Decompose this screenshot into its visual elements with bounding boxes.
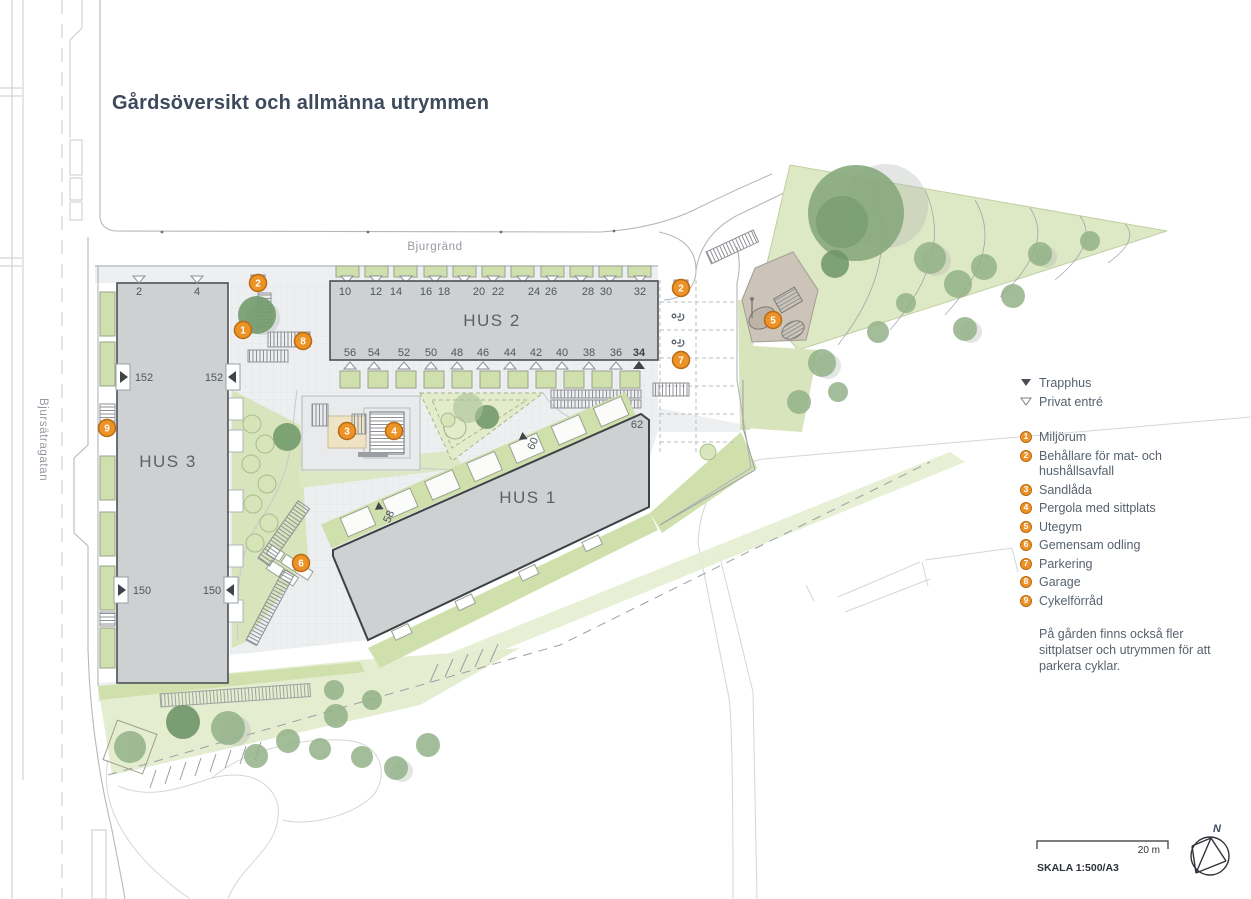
svg-text:2: 2 xyxy=(255,279,261,290)
stairwell-triangle-icon xyxy=(1020,378,1032,387)
legend: Trapphus Privat entré 1 Miljörum 2 Behål… xyxy=(1020,376,1230,674)
accessible-parking-icon xyxy=(672,339,684,346)
svg-text:40: 40 xyxy=(556,347,568,359)
svg-text:152: 152 xyxy=(205,372,223,384)
building-hus3: HUS 3 xyxy=(117,283,228,683)
svg-text:2: 2 xyxy=(136,286,142,298)
legend-number-icon: 2 xyxy=(1020,450,1032,462)
marker-pergola: 4 xyxy=(386,423,403,440)
svg-text:54: 54 xyxy=(368,347,380,359)
street-left-label: Bjursätragatan xyxy=(37,398,49,481)
svg-text:28: 28 xyxy=(582,286,594,298)
svg-text:152: 152 xyxy=(135,372,153,384)
street-bjursatragatan: Bjursätragatan xyxy=(0,0,125,899)
svg-text:62: 62 xyxy=(631,419,643,431)
marker-sandlada: 3 xyxy=(339,423,356,440)
north-compass-icon xyxy=(1191,837,1229,875)
svg-text:48: 48 xyxy=(451,347,463,359)
legend-number-icon: 9 xyxy=(1020,595,1032,607)
marker-cykelforrad: 9 xyxy=(99,420,116,437)
legend-number-icon: 6 xyxy=(1020,539,1032,551)
legend-privat-entre-label: Privat entré xyxy=(1039,395,1207,411)
accessible-parking-icon xyxy=(672,313,684,320)
marker-odling: 6 xyxy=(293,555,310,572)
marker-parkering: 7 xyxy=(673,352,690,369)
svg-text:30: 30 xyxy=(600,286,612,298)
svg-text:32: 32 xyxy=(634,286,646,298)
svg-text:42: 42 xyxy=(530,347,542,359)
svg-text:9: 9 xyxy=(104,424,110,435)
svg-text:20: 20 xyxy=(473,286,485,298)
legend-number-icon: 8 xyxy=(1020,576,1032,588)
svg-text:5: 5 xyxy=(770,316,776,327)
hus3-west-balconies xyxy=(100,292,115,668)
legend-item-avfall: 2 Behållare för mat- och hushållsavfall xyxy=(1020,449,1230,480)
svg-text:4: 4 xyxy=(194,286,200,298)
svg-text:26: 26 xyxy=(545,286,557,298)
marker-avfall-2: 2 xyxy=(673,280,690,297)
svg-text:56: 56 xyxy=(344,347,356,359)
svg-text:38: 38 xyxy=(583,347,595,359)
legend-trapphus-label: Trapphus xyxy=(1039,376,1207,392)
svg-text:10: 10 xyxy=(339,286,351,298)
legend-trapphus: Trapphus xyxy=(1020,376,1230,392)
legend-note: På gården finns också fler sittplatser o… xyxy=(1039,626,1224,674)
legend-item-garage: 8 Garage xyxy=(1020,575,1230,591)
svg-text:150: 150 xyxy=(133,585,151,597)
legend-item-miljorum: 1 Miljörum xyxy=(1020,430,1230,446)
svg-text:150: 150 xyxy=(203,585,221,597)
legend-number-icon: 1 xyxy=(1020,431,1032,443)
svg-text:36: 36 xyxy=(610,347,622,359)
svg-text:52: 52 xyxy=(398,347,410,359)
svg-text:7: 7 xyxy=(678,356,684,367)
svg-text:44: 44 xyxy=(504,347,516,359)
legend-number-icon: 4 xyxy=(1020,502,1032,514)
svg-text:16: 16 xyxy=(420,286,432,298)
legend-number-icon: 7 xyxy=(1020,558,1032,570)
svg-text:3: 3 xyxy=(344,427,350,438)
legend-item-odling: 6 Gemensam odling xyxy=(1020,538,1230,554)
svg-text:4: 4 xyxy=(391,427,397,438)
marker-utegym: 5 xyxy=(765,312,782,329)
legend-item-sandlada: 3 Sandlåda xyxy=(1020,483,1230,499)
svg-text:14: 14 xyxy=(390,286,402,298)
svg-text:12: 12 xyxy=(370,286,382,298)
private-entrance-triangle-icon xyxy=(1020,397,1032,406)
hus3-label: HUS 3 xyxy=(139,452,197,471)
hus1-label: HUS 1 xyxy=(499,488,557,507)
legend-item-utegym: 5 Utegym xyxy=(1020,520,1230,536)
marker-avfall-1: 2 xyxy=(250,275,267,292)
svg-text:22: 22 xyxy=(492,286,504,298)
svg-text:46: 46 xyxy=(477,347,489,359)
site-plan-page: Bjursätragatan Bjurgränd xyxy=(0,0,1251,899)
svg-text:6: 6 xyxy=(298,559,304,570)
svg-text:34: 34 xyxy=(633,347,646,359)
svg-text:24: 24 xyxy=(528,286,540,298)
scale-ratio-label: SKALA 1:500/A3 xyxy=(1037,862,1119,874)
legend-item-pergola: 4 Pergola med sittplats xyxy=(1020,501,1230,517)
legend-number-icon: 3 xyxy=(1020,484,1032,496)
bench xyxy=(358,452,388,457)
street-top-label: Bjurgränd xyxy=(407,241,462,253)
svg-text:1: 1 xyxy=(240,326,246,337)
page-title: Gårdsöversikt och allmänna utrymmen xyxy=(112,92,489,115)
svg-text:50: 50 xyxy=(425,347,437,359)
svg-text:18: 18 xyxy=(438,286,450,298)
svg-text:2: 2 xyxy=(678,284,684,295)
legend-item-parkering: 7 Parkering xyxy=(1020,557,1230,573)
marker-garage: 8 xyxy=(295,333,312,350)
scale-distance-label: 20 m xyxy=(1138,845,1160,856)
hus2-label: HUS 2 xyxy=(463,311,521,330)
legend-item-cykelforrad: 9 Cykelförråd xyxy=(1020,594,1230,610)
legend-number-icon: 5 xyxy=(1020,521,1032,533)
legend-privat-entre: Privat entré xyxy=(1020,395,1230,411)
north-label: N xyxy=(1213,823,1222,835)
svg-text:8: 8 xyxy=(300,337,306,348)
marker-miljorum: 1 xyxy=(235,322,252,339)
